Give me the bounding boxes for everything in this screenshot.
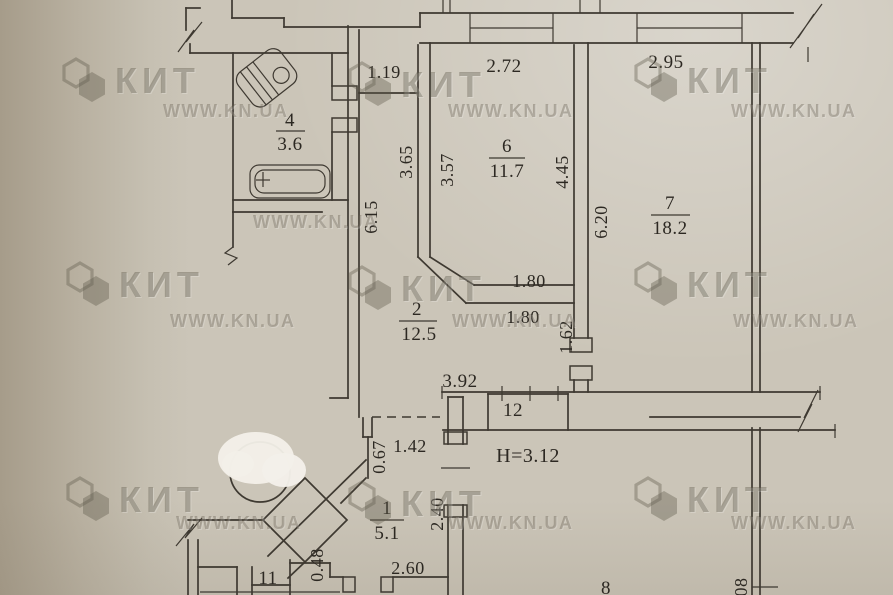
dimension-label: 3.57 <box>437 153 457 187</box>
door-jamb <box>332 86 357 100</box>
room-number: 12 <box>503 400 523 421</box>
dimension-label: 2.40 <box>427 497 447 531</box>
room-number: 1 <box>382 498 392 519</box>
mid-wall <box>442 386 835 438</box>
window-symbols <box>470 13 742 43</box>
dimension-label: 3.92 <box>442 371 477 392</box>
break-symbol <box>790 4 822 48</box>
room-number: 2 <box>412 299 422 320</box>
sink-icon <box>232 45 300 111</box>
dimension-label: 1.62 <box>556 320 576 354</box>
dimension-label: 6.20 <box>591 205 611 239</box>
dimension-label: 1.80 <box>512 271 546 291</box>
dimension-label: 2.60 <box>391 558 425 578</box>
room-area: 11.7 <box>490 161 525 182</box>
dimension-label: 4.45 <box>552 155 572 189</box>
room-number: 7 <box>665 193 675 214</box>
dimension-label: 2.72 <box>486 56 521 77</box>
floorplan-photo: 1.19 2.72 2.95 3.65 3.57 4.45 6.20 6.15 … <box>0 0 893 595</box>
door-jamb <box>570 366 592 380</box>
dimension-labels: 1.19 2.72 2.95 3.65 3.57 4.45 6.20 6.15 … <box>307 52 751 595</box>
room-number: 8 <box>601 578 611 595</box>
break-symbol <box>798 390 818 432</box>
room-number: 11 <box>258 568 277 589</box>
room-area: 3.6 <box>277 134 302 155</box>
room-number: 4 <box>285 110 295 131</box>
dimension-label: 0.48 <box>307 548 327 582</box>
dimension-label: 1.80 <box>506 307 540 327</box>
ceiling-height-label: H=3.12 <box>496 445 560 467</box>
break-symbol <box>225 247 237 265</box>
room-area: 12.5 <box>401 324 436 345</box>
bathtub-icon <box>250 165 330 198</box>
room-number: 6 <box>502 136 512 157</box>
door-jamb <box>381 577 393 592</box>
floor-plan: 1.19 2.72 2.95 3.65 3.57 4.45 6.20 6.15 … <box>0 0 893 595</box>
door-jamb <box>332 118 357 132</box>
dimension-label: 08 <box>731 578 751 595</box>
room-labels: 4 3.6 6 11.7 7 18.2 2 12.5 1 5.1 12 11 8 <box>258 110 690 595</box>
bathroom-walls <box>190 53 357 265</box>
dimension-label: 6.15 <box>361 200 381 234</box>
door-jamb <box>343 577 355 592</box>
dimension-label: 3.65 <box>396 145 416 179</box>
room-divider-walls <box>570 43 778 595</box>
dimension-label: 0.67 <box>369 440 389 474</box>
dimension-label: 1.42 <box>393 436 427 456</box>
dimension-label: 2.95 <box>648 52 683 73</box>
dimension-label: 1.19 <box>367 62 401 82</box>
room-area: 18.2 <box>652 218 687 239</box>
room-area: 5.1 <box>374 523 399 544</box>
